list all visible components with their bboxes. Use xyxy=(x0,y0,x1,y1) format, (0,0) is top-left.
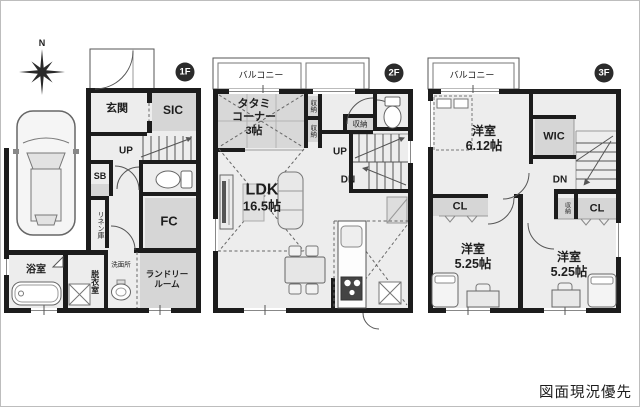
label-wic: WIC xyxy=(543,131,564,144)
label-bedroom2-left-size: 5.25帖 xyxy=(455,257,492,271)
label-sic: SIC xyxy=(163,104,183,118)
label-storage-2f-b: 収納 xyxy=(308,125,315,138)
label-tatami: タタミ コーナー 3帖 xyxy=(232,98,276,138)
label-storage-2f-a: 収納 xyxy=(308,100,315,113)
label-bedroom1: 洋室 6.12帖 xyxy=(466,125,503,153)
kitchen-counter-icon xyxy=(338,221,366,308)
label-bedroom2-right-name: 洋室 xyxy=(551,251,588,265)
toilet-icon xyxy=(156,171,192,188)
floor1-badge: 1F xyxy=(176,63,195,82)
label-bedroom1-name: 洋室 xyxy=(466,125,503,139)
label-bedroom2-right-size: 5.25帖 xyxy=(551,265,588,279)
label-dn-2f: DN xyxy=(341,174,355,186)
sb-cabinet xyxy=(91,184,109,198)
entrance-porch xyxy=(90,49,154,91)
label-bedroom1-size: 6.12帖 xyxy=(466,139,503,153)
label-tatami-line3: 3帖 xyxy=(232,125,276,138)
label-ldk-size: 16.5帖 xyxy=(243,200,281,215)
label-entrance: 玄関 xyxy=(106,103,128,116)
floor2-badge: 2F xyxy=(385,64,404,83)
label-linen: リネン庫 xyxy=(96,211,104,239)
label-storage-3f: 収納 xyxy=(563,202,570,214)
sofa-icon xyxy=(278,172,303,229)
label-washroom: 洗面所 xyxy=(111,261,131,268)
label-ldk: LDK 16.5帖 xyxy=(243,181,281,214)
caption-note: 図面現況優先 xyxy=(539,381,632,402)
label-tatami-line2: コーナー xyxy=(232,111,276,124)
toilet-icon xyxy=(384,97,401,128)
label-tatami-line1: タタミ xyxy=(232,98,276,111)
car-icon xyxy=(13,111,79,235)
label-cl-right: CL xyxy=(590,203,605,216)
compass-icon xyxy=(19,49,65,95)
bathtub-icon xyxy=(12,282,61,305)
floorplan-canvas: 1F 2F 3F N 玄関 SIC UP SB リネン庫 FC 浴室 脱衣室 洗… xyxy=(0,0,640,407)
label-bedroom2-right: 洋室 5.25帖 xyxy=(551,251,588,279)
label-laundry-line2: ルーム xyxy=(146,280,189,290)
label-bedroom2-left: 洋室 5.25帖 xyxy=(455,243,492,271)
label-dressing: 脱衣室 xyxy=(90,270,99,294)
label-dn-3f: DN xyxy=(553,174,567,186)
label-bathroom: 浴室 xyxy=(26,264,46,276)
label-storage-2f-c: 収納 xyxy=(353,121,368,130)
label-up-2f: UP xyxy=(333,146,347,158)
compass-north-label: N xyxy=(39,38,46,48)
label-balcony-2f: バルコニー xyxy=(239,70,284,80)
tv-board-icon xyxy=(220,175,233,229)
plan-drawing xyxy=(1,1,640,407)
floor3-badge: 3F xyxy=(595,64,614,83)
label-bedroom2-left-name: 洋室 xyxy=(455,243,492,257)
label-sb: SB xyxy=(94,171,107,181)
label-up-1f: UP xyxy=(119,145,133,157)
label-laundry: ランドリー ルーム xyxy=(146,270,189,290)
label-ldk-name: LDK xyxy=(243,181,281,199)
label-cl-left: CL xyxy=(453,201,468,214)
label-balcony-3f: バルコニー xyxy=(450,70,495,80)
label-fc: FC xyxy=(160,215,177,230)
